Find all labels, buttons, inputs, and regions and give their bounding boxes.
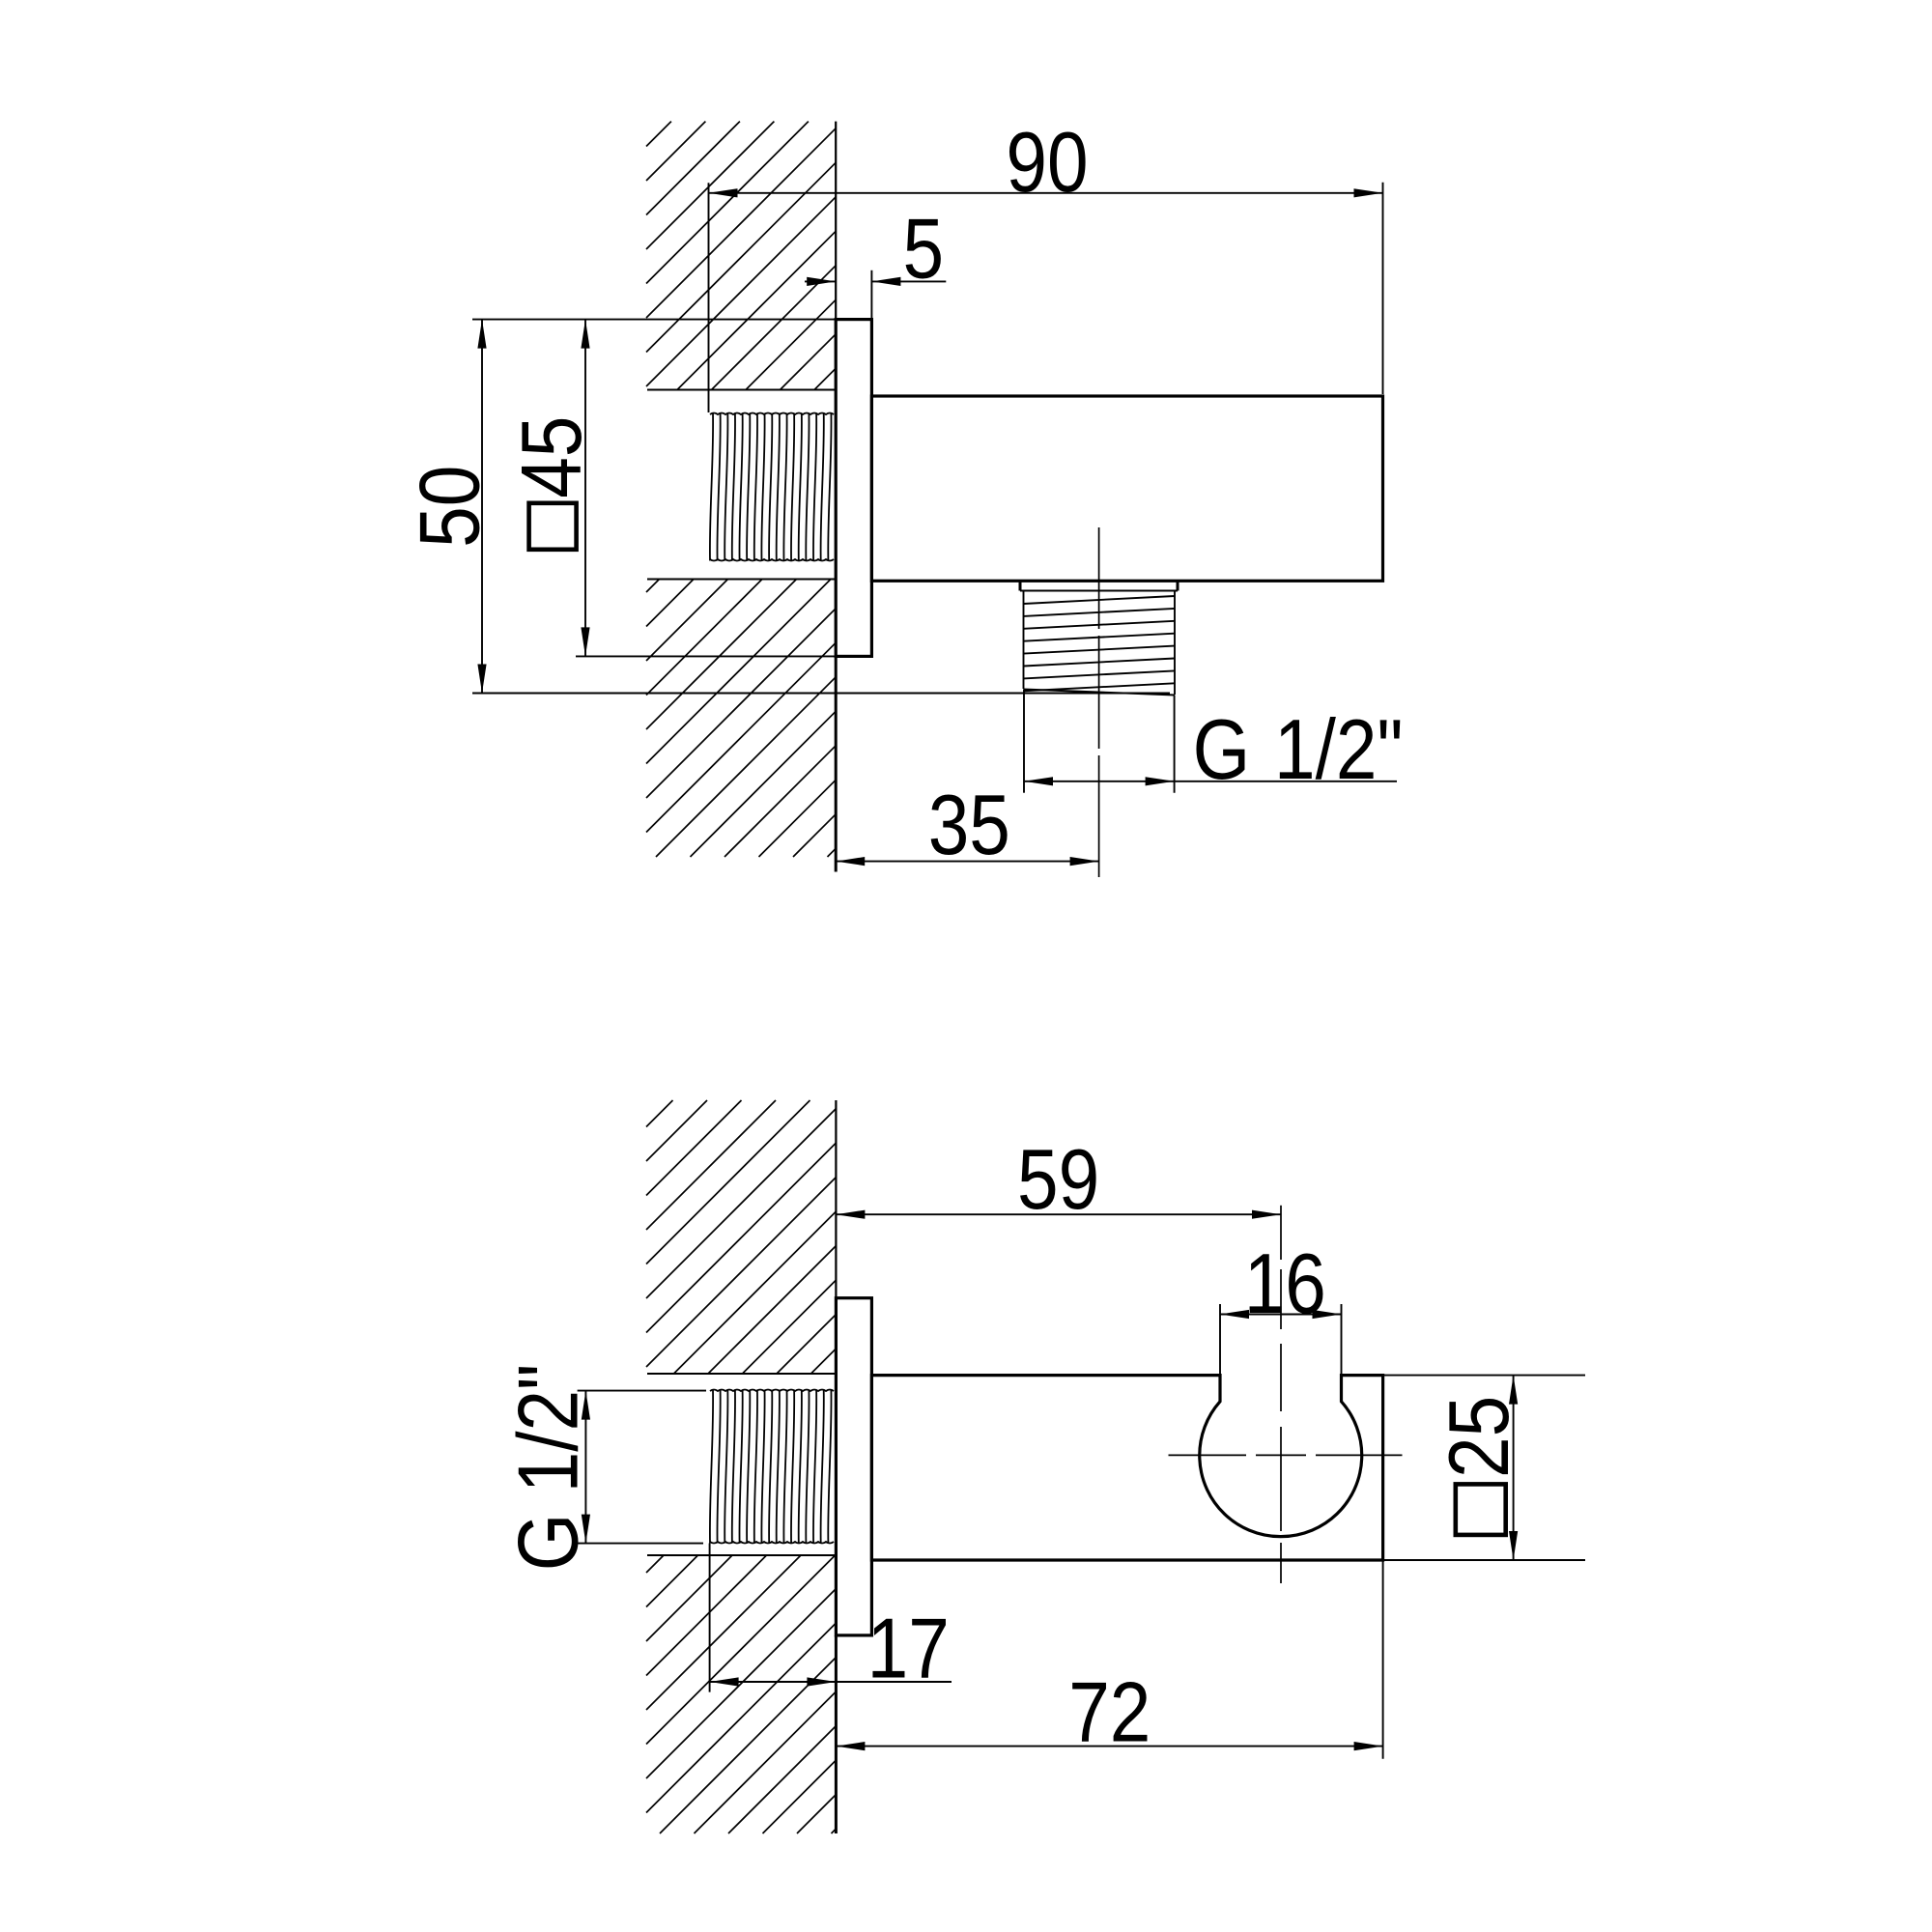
svg-text:17: 17	[867, 1602, 950, 1696]
svg-text:35: 35	[928, 778, 1010, 872]
svg-text:1/2": 1/2"	[1274, 702, 1404, 797]
svg-text:G 1/2": G 1/2"	[501, 1364, 596, 1571]
svg-text:G: G	[1193, 702, 1251, 797]
svg-text:5: 5	[903, 201, 945, 296]
svg-text:59: 59	[1017, 1132, 1099, 1227]
svg-text:45: 45	[504, 416, 599, 498]
svg-text:72: 72	[1068, 1665, 1151, 1760]
svg-text:50: 50	[403, 466, 497, 548]
svg-text:16: 16	[1244, 1236, 1326, 1331]
svg-text:25: 25	[1432, 1396, 1526, 1478]
svg-text:90: 90	[1006, 115, 1088, 210]
